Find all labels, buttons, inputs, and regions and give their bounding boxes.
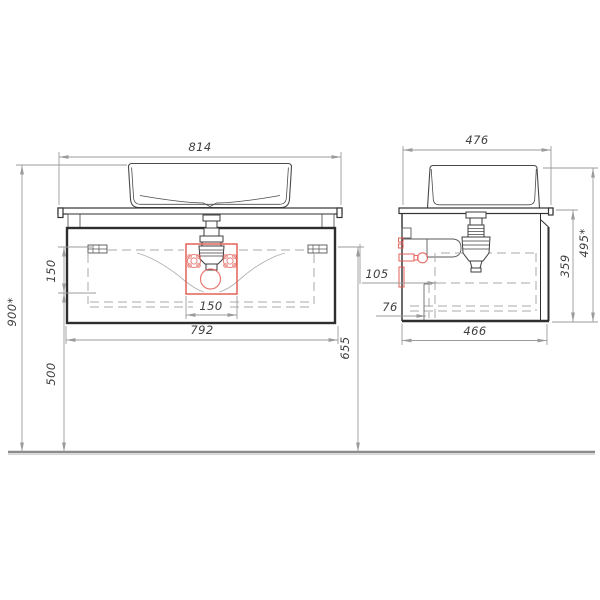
side-wall-connections	[399, 238, 428, 287]
floor-line	[8, 452, 595, 454]
side-siphon	[462, 212, 490, 272]
dim-466-label: 466	[463, 324, 486, 338]
side-step-line	[424, 284, 432, 320]
dim-476-label: 476	[465, 133, 488, 147]
vanity-technical-drawing: 814 476 900* 150 500 655 150 792 105 76 …	[0, 0, 600, 600]
dim-150-center-label: 150	[199, 299, 222, 313]
front-siphon	[199, 215, 224, 270]
drawing-canvas: 814 476 900* 150 500 655 150 792 105 76 …	[0, 0, 600, 600]
dim-792-label: 792	[190, 323, 213, 337]
dim-500-label: 500	[44, 362, 58, 385]
front-apron	[68, 214, 334, 228]
dim-814-label: 814	[188, 140, 211, 154]
dim-150-left-label: 150	[44, 259, 58, 282]
dim-76-label: 76	[382, 300, 397, 314]
dim-105-label: 105	[365, 267, 388, 281]
front-basin	[129, 164, 292, 208]
front-drawer-slide-left	[88, 245, 107, 253]
side-view	[399, 166, 554, 322]
side-basin	[428, 166, 540, 209]
dim-655-label: 655	[338, 336, 352, 359]
front-drawer-slide-right	[308, 245, 327, 253]
dim-495-label: 495*	[577, 228, 591, 257]
dim-359-label: 359	[558, 254, 572, 277]
front-countertop	[58, 208, 342, 218]
dim-900-label: 900*	[5, 297, 19, 326]
side-slide-bracket	[402, 228, 461, 257]
